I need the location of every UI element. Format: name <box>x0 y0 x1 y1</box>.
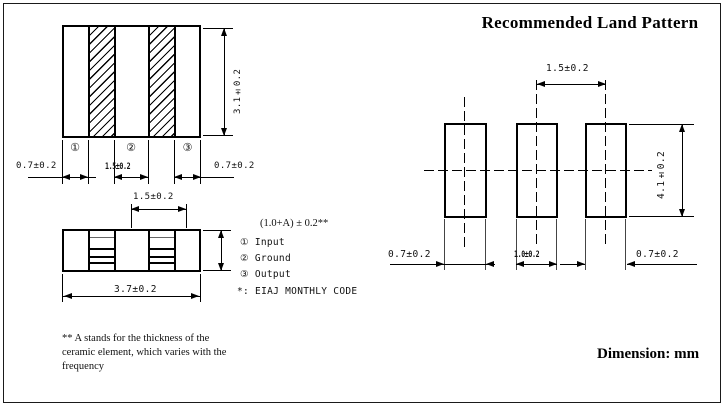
dim-label-right-pad-width: 0.7±0.2 <box>636 249 679 260</box>
dim-label-pad-pitch: 1.5±0.2 <box>546 63 589 74</box>
arrowhead <box>577 261 585 267</box>
dim-label-pad-height: 4.1±0.2 <box>656 139 667 199</box>
arrowhead <box>549 261 557 267</box>
extension-line <box>625 219 626 270</box>
drawing-canvas: ① ② ③ 0.7±0.2 1.5±0.2 0.7±0.2 3.1±0.2 <box>0 0 727 409</box>
section-title: Recommended Land Pattern <box>430 13 727 33</box>
arrowhead <box>598 81 606 87</box>
dim-label-left-pad-width: 0.7±0.2 <box>388 249 431 260</box>
arrowhead <box>679 124 685 132</box>
extension-line <box>585 219 586 270</box>
dimension-line <box>627 264 697 265</box>
arrowhead <box>537 81 545 87</box>
arrowhead <box>627 261 635 267</box>
land-pad-center <box>516 123 558 218</box>
dimension-line <box>537 84 606 85</box>
land-pad-right <box>585 123 627 218</box>
arrowhead <box>436 261 444 267</box>
land-pad-left <box>444 123 487 218</box>
arrowhead <box>516 261 524 267</box>
dim-label-center-pad-width: 1.0±0.2 <box>514 250 539 260</box>
dimension-line <box>682 124 683 217</box>
arrowhead <box>486 261 494 267</box>
dimension-unit-note: Dimension: mm <box>597 346 699 363</box>
extension-line <box>444 219 445 270</box>
arrowhead <box>679 209 685 217</box>
